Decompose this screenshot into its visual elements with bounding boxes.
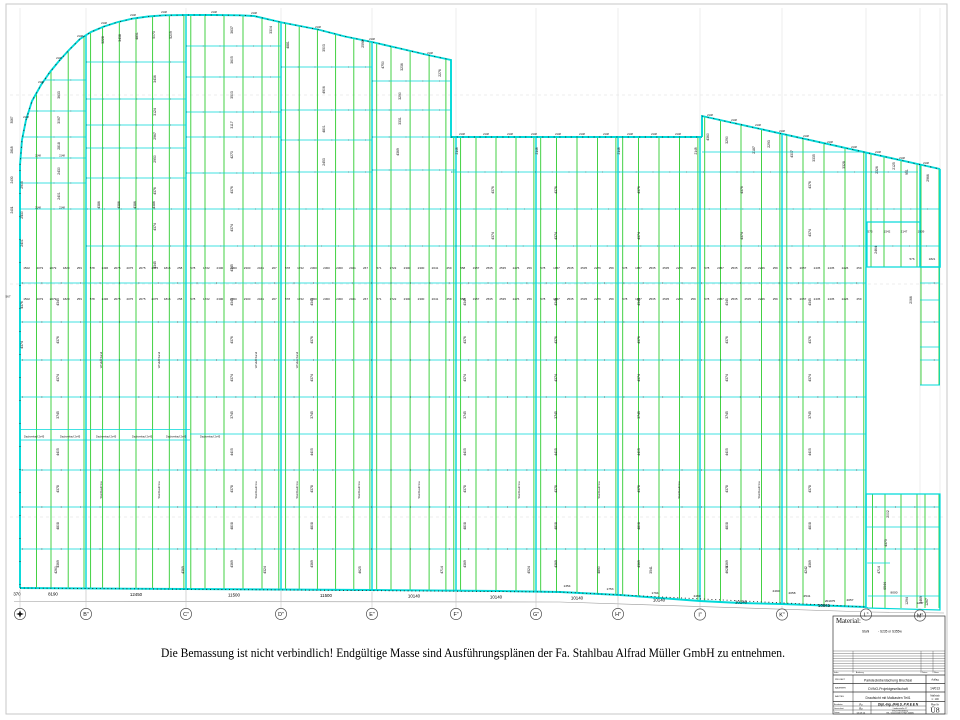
svg-text:2300: 2300 [310, 266, 317, 270]
svg-text:10140: 10140 [408, 594, 421, 599]
svg-text:259: 259 [77, 297, 82, 301]
svg-text:2401: 2401 [20, 239, 24, 247]
svg-text:BAUHERR: BAUHERR [835, 687, 846, 690]
svg-text:1722: 1722 [390, 297, 397, 301]
svg-text:258: 258 [177, 297, 182, 301]
svg-text:2148: 2148 [459, 132, 465, 136]
svg-text:558: 558 [460, 266, 465, 270]
svg-text:- S235 or S355w: - S235 or S355w [878, 630, 902, 634]
svg-text:Name: Name [934, 672, 939, 674]
svg-text:1957: 1957 [473, 266, 480, 270]
svg-text:2041: 2041 [349, 266, 356, 270]
svg-text:4376: 4376 [230, 336, 234, 344]
svg-text:2535: 2535 [499, 297, 506, 301]
svg-text:4890: 4890 [597, 566, 601, 574]
svg-text:2057: 2057 [717, 266, 724, 270]
svg-text:2300: 2300 [404, 297, 411, 301]
svg-text:2300: 2300 [336, 297, 343, 301]
svg-text:2148: 2148 [77, 34, 83, 38]
svg-text:1909: 1909 [918, 230, 925, 234]
svg-text:4374: 4374 [153, 223, 157, 231]
svg-text:2226: 2226 [758, 266, 765, 270]
svg-text:2148: 2148 [755, 123, 761, 127]
svg-text:Stahlbaufirma: Stahlbaufirma [254, 481, 258, 499]
svg-text:2148: 2148 [507, 132, 513, 136]
svg-text:1722: 1722 [297, 266, 304, 270]
svg-text:4378: 4378 [463, 485, 467, 493]
svg-text:2057: 2057 [800, 297, 807, 301]
svg-text:1267: 1267 [917, 601, 924, 605]
svg-text:2057: 2057 [847, 598, 854, 602]
svg-text:2148: 2148 [56, 56, 62, 60]
svg-text:2276: 2276 [594, 266, 601, 270]
svg-text:1753: 1753 [607, 587, 614, 591]
svg-text:4376: 4376 [56, 336, 60, 344]
svg-text:4378: 4378 [725, 485, 729, 493]
svg-text:K”: K” [779, 612, 785, 618]
svg-text:2147: 2147 [901, 230, 908, 234]
svg-text:Stahl: Stahl [862, 630, 870, 634]
svg-text:2066: 2066 [909, 296, 913, 304]
svg-text:11500: 11500 [228, 593, 240, 598]
svg-text:2535: 2535 [499, 266, 506, 270]
svg-text:2148: 2148 [531, 132, 537, 136]
svg-text:DVNO-Projektgesellschaft: DVNO-Projektgesellschaft [868, 687, 907, 691]
svg-text:Stahlbaufirma: Stahlbaufirma [99, 481, 103, 499]
svg-text:4374: 4374 [56, 374, 60, 382]
svg-text:Bearbeiter: Bearbeiter [834, 703, 843, 706]
svg-text:4405: 4405 [808, 448, 812, 456]
svg-text:4374: 4374 [637, 374, 641, 382]
svg-text:Stahlbaufirma: Stahlbaufirma [597, 481, 601, 499]
svg-text:4374: 4374 [808, 374, 812, 382]
svg-text:4750: 4750 [381, 61, 385, 69]
svg-text:2535: 2535 [567, 297, 574, 301]
svg-text:4405: 4405 [463, 448, 467, 456]
svg-text:1294: 1294 [905, 597, 909, 605]
svg-text:2430: 2430 [20, 211, 24, 219]
svg-text:Stahlbaufirma: Stahlbaufirma [677, 481, 681, 499]
svg-text:4808: 4808 [230, 522, 234, 530]
svg-text:2535: 2535 [486, 266, 493, 270]
svg-text:4369: 4369 [181, 566, 185, 574]
svg-text:Stahlbaufirma: Stahlbaufirma [417, 481, 421, 499]
svg-text:1821: 1821 [929, 257, 936, 261]
svg-text:2535: 2535 [649, 266, 656, 270]
svg-text:Windverband: Windverband [157, 351, 161, 368]
svg-text:259: 259 [773, 297, 778, 301]
svg-text:2148: 2148 [579, 132, 585, 136]
svg-text:2041: 2041 [432, 266, 439, 270]
svg-text:2535: 2535 [649, 297, 656, 301]
svg-text:4376: 4376 [554, 336, 558, 344]
svg-text:03.09.14: 03.09.14 [857, 712, 866, 714]
svg-text:2041: 2041 [349, 297, 356, 301]
svg-text:259: 259 [527, 266, 532, 270]
svg-text:2002: 2002 [886, 510, 890, 518]
svg-text:1957: 1957 [635, 297, 642, 301]
svg-text:2148: 2148 [803, 134, 809, 138]
svg-text:2435: 2435 [828, 297, 835, 301]
svg-text:2300: 2300 [217, 266, 224, 270]
svg-text:2148: 2148 [59, 154, 65, 158]
svg-text:4374: 4374 [230, 224, 234, 232]
svg-text:Änderung: Änderung [856, 671, 864, 674]
svg-text:3290: 3290 [725, 136, 729, 144]
svg-text:1722: 1722 [203, 266, 210, 270]
svg-text:575: 575 [867, 230, 872, 234]
svg-text:2148: 2148 [427, 51, 433, 55]
svg-text:14/013: 14/013 [930, 687, 940, 691]
svg-text:571: 571 [376, 266, 381, 270]
svg-text:D”: D” [278, 612, 284, 618]
svg-text:4374: 4374 [808, 229, 812, 237]
svg-text:4378: 4378 [554, 485, 558, 493]
svg-text:2148: 2148 [130, 13, 136, 17]
svg-text:4378: 4378 [808, 485, 812, 493]
svg-text:2490: 2490 [773, 589, 780, 593]
svg-text:2535: 2535 [567, 266, 574, 270]
svg-text:4242: 4242 [804, 566, 808, 574]
svg-text:2300: 2300 [230, 297, 237, 301]
svg-text:3331: 3331 [398, 117, 402, 125]
svg-text:2435: 2435 [814, 266, 821, 270]
svg-text:267: 267 [363, 266, 368, 270]
svg-text:4376: 4376 [725, 336, 729, 344]
svg-text:3335: 3335 [812, 154, 816, 162]
svg-text:Gezeichnet: Gezeichnet [834, 707, 844, 710]
svg-text:2148: 2148 [38, 80, 44, 84]
svg-text:4625: 4625 [725, 566, 729, 574]
svg-text:H”: H” [615, 612, 621, 618]
svg-text:578: 578 [540, 297, 545, 301]
svg-text:10140: 10140 [653, 598, 666, 603]
svg-text:4378: 4378 [56, 485, 60, 493]
svg-text:2125: 2125 [892, 162, 896, 170]
svg-text:2293: 2293 [767, 140, 771, 148]
svg-text:1957: 1957 [553, 297, 560, 301]
svg-text:4307: 4307 [790, 150, 794, 158]
svg-text:2535: 2535 [662, 297, 669, 301]
svg-text:4374: 4374 [310, 374, 314, 382]
svg-text:2401: 2401 [10, 206, 14, 213]
svg-text:2148: 2148 [211, 10, 217, 14]
svg-text:578: 578 [90, 266, 95, 270]
svg-text:4345: 4345 [808, 298, 812, 306]
svg-text:2148: 2148 [251, 11, 257, 15]
svg-text:4376: 4376 [740, 186, 744, 194]
svg-text:2075: 2075 [114, 297, 121, 301]
svg-text:4801: 4801 [322, 125, 326, 133]
svg-text:4369: 4369 [808, 560, 812, 568]
svg-text:2148: 2148 [779, 129, 785, 133]
svg-text:4376: 4376 [491, 186, 495, 194]
svg-text:Datum: Datum [834, 711, 840, 714]
svg-text:259: 259 [446, 266, 451, 270]
svg-text:1957: 1957 [553, 266, 560, 270]
svg-text:3124: 3124 [153, 108, 157, 116]
svg-text:2300: 2300 [217, 297, 224, 301]
svg-text:1496: 1496 [101, 297, 108, 301]
svg-text:4360: 4360 [706, 133, 710, 141]
svg-text:2148: 2148 [483, 132, 489, 136]
svg-text:3438: 3438 [118, 34, 122, 42]
svg-text:3745: 3745 [56, 411, 60, 419]
svg-text:2148: 2148 [923, 161, 929, 165]
svg-text:2148: 2148 [161, 10, 167, 14]
svg-text:267: 267 [363, 297, 368, 301]
svg-text:2148: 2148 [651, 132, 657, 136]
svg-text:4808: 4808 [554, 522, 558, 530]
svg-text:C”: C” [183, 612, 189, 618]
svg-text:951: 951 [905, 169, 909, 175]
svg-text:2226: 2226 [758, 297, 765, 301]
svg-text:2453: 2453 [322, 158, 326, 166]
svg-text:4375: 4375 [884, 539, 888, 547]
svg-text:2148: 2148 [694, 147, 698, 154]
svg-text:4376: 4376 [230, 186, 234, 194]
svg-text:4405: 4405 [554, 448, 558, 456]
svg-text:3304: 3304 [269, 26, 273, 34]
svg-text:3745: 3745 [554, 411, 558, 419]
svg-text:Dachverlauf 2x45: Dachverlauf 2x45 [60, 435, 81, 439]
svg-text:2148: 2148 [731, 118, 737, 122]
svg-text:259: 259 [446, 297, 451, 301]
svg-text:3067: 3067 [10, 116, 14, 123]
svg-text:3745: 3745 [463, 411, 467, 419]
svg-text:BAUTEIL: BAUTEIL [835, 695, 845, 698]
svg-text:1722: 1722 [297, 297, 304, 301]
svg-text:4369: 4369 [396, 148, 400, 156]
svg-text:F”: F” [453, 612, 458, 618]
svg-text:4376: 4376 [554, 186, 558, 194]
svg-text:Windverband: Windverband [254, 351, 258, 368]
svg-text:Material:: Material: [836, 618, 861, 625]
svg-text:2148: 2148 [617, 147, 621, 154]
svg-text:4851: 4851 [135, 32, 139, 40]
svg-text:2148: 2148 [35, 206, 41, 210]
svg-text:2148: 2148 [851, 145, 857, 149]
svg-text:1354: 1354 [564, 584, 571, 588]
svg-text:2079: 2079 [36, 266, 43, 270]
svg-text:576: 576 [909, 257, 914, 261]
svg-text:4376: 4376 [463, 336, 467, 344]
svg-text:2148: 2148 [627, 132, 633, 136]
svg-text:4808: 4808 [637, 522, 641, 530]
svg-text:2148: 2148 [899, 156, 905, 160]
svg-text:4374: 4374 [637, 232, 641, 240]
svg-text:2300: 2300 [244, 266, 251, 270]
svg-text:2276: 2276 [676, 266, 683, 270]
svg-text:2300: 2300 [230, 266, 237, 270]
svg-text:4405: 4405 [725, 448, 729, 456]
svg-text:3745: 3745 [310, 411, 314, 419]
svg-text:2818: 2818 [57, 142, 61, 150]
svg-text:2401: 2401 [57, 192, 61, 200]
svg-text:4405: 4405 [230, 448, 234, 456]
svg-text:2148: 2148 [101, 21, 107, 25]
svg-text:2148: 2148 [603, 132, 609, 136]
svg-text:3745: 3745 [725, 411, 729, 419]
svg-text:10140: 10140 [735, 600, 748, 605]
svg-text:2148: 2148 [707, 113, 713, 117]
svg-text:Stahlbaufirma: Stahlbaufirma [357, 481, 361, 499]
svg-text:2041: 2041 [257, 297, 264, 301]
svg-text:3503: 3503 [322, 44, 326, 52]
svg-text:2075: 2075 [126, 297, 133, 301]
svg-text:2435: 2435 [828, 266, 835, 270]
svg-text:4376: 4376 [808, 336, 812, 344]
svg-text:4374: 4374 [740, 232, 744, 240]
svg-text:4369: 4369 [230, 560, 234, 568]
svg-text:8190: 8190 [48, 592, 58, 597]
svg-text:5073: 5073 [152, 31, 156, 39]
svg-text:4369: 4369 [637, 560, 641, 568]
svg-text:12450: 12450 [130, 592, 143, 597]
svg-text:Dachverlauf 2x45: Dachverlauf 2x45 [132, 435, 153, 439]
svg-text:3745: 3745 [808, 411, 812, 419]
svg-text:Index: Index [834, 672, 838, 674]
svg-text:2148: 2148 [827, 140, 833, 144]
svg-text:6944: 6944 [883, 582, 887, 590]
svg-text:1722: 1722 [203, 297, 210, 301]
svg-text:4714: 4714 [440, 566, 444, 574]
svg-text:4273: 4273 [230, 151, 234, 159]
svg-text:2079: 2079 [50, 297, 57, 301]
svg-text:Windverband: Windverband [295, 351, 299, 368]
svg-text:Dachverlauf 2x45: Dachverlauf 2x45 [24, 435, 45, 439]
svg-text:Stahlbaufirma: Stahlbaufirma [757, 481, 761, 499]
svg-text:2075: 2075 [139, 297, 146, 301]
svg-text:3228: 3228 [101, 36, 105, 44]
svg-text:2148: 2148 [455, 147, 459, 154]
svg-text:2535: 2535 [580, 266, 587, 270]
svg-text:Dachverlauf 2x45: Dachverlauf 2x45 [200, 435, 221, 439]
svg-text:1267: 1267 [925, 598, 929, 606]
svg-text:1502: 1502 [23, 297, 30, 301]
svg-text:3541: 3541 [649, 566, 653, 574]
svg-text:2148: 2148 [59, 206, 65, 210]
svg-text:2535: 2535 [731, 297, 738, 301]
svg-text:1820: 1820 [63, 297, 70, 301]
svg-text:2905: 2905 [20, 181, 24, 189]
svg-text:259: 259 [527, 297, 532, 301]
svg-text:Datum: Datum [922, 671, 928, 674]
svg-text:1722: 1722 [390, 266, 397, 270]
svg-text:259: 259 [77, 266, 82, 270]
svg-text:4374: 4374 [554, 374, 558, 382]
svg-text:4369: 4369 [310, 560, 314, 568]
svg-text:3117: 3117 [230, 121, 234, 128]
svg-text:2276: 2276 [594, 297, 601, 301]
svg-text:571: 571 [376, 297, 381, 301]
svg-text:1542: 1542 [884, 230, 891, 234]
svg-text:4376: 4376 [637, 336, 641, 344]
svg-text:2300: 2300 [244, 297, 251, 301]
svg-text:Stahlbaufirma: Stahlbaufirma [157, 481, 161, 499]
svg-text:1 : 100: 1 : 100 [931, 698, 939, 701]
svg-text:258: 258 [177, 266, 182, 270]
svg-text:2057: 2057 [800, 266, 807, 270]
svg-text:4374: 4374 [20, 341, 24, 349]
svg-text:4369: 4369 [463, 560, 467, 568]
svg-text:G”: G” [533, 612, 539, 618]
svg-text:2226: 2226 [842, 297, 849, 301]
svg-text:1794: 1794 [652, 591, 659, 595]
svg-text:3605: 3605 [230, 56, 234, 64]
svg-text:2300: 2300 [404, 266, 411, 270]
svg-text:Die Bemassung ist nicht verbin: Die Bemassung ist nicht verbindlich! End… [161, 646, 785, 660]
svg-text:2041: 2041 [432, 297, 439, 301]
svg-text:3290: 3290 [398, 92, 402, 100]
svg-text:4374: 4374 [554, 232, 558, 240]
svg-text:259: 259 [691, 297, 696, 301]
svg-text:2435: 2435 [814, 297, 821, 301]
svg-text:4376: 4376 [808, 181, 812, 189]
svg-text:578: 578 [190, 297, 195, 301]
svg-text:4369: 4369 [554, 560, 558, 568]
svg-text:2075: 2075 [151, 297, 158, 301]
svg-text:2967: 2967 [153, 132, 157, 140]
svg-text:E”: E” [369, 612, 375, 618]
svg-text:3236: 3236 [400, 63, 404, 71]
svg-text:1816: 1816 [164, 297, 171, 301]
svg-text:267: 267 [272, 266, 277, 270]
svg-text:2430: 2430 [57, 167, 61, 175]
svg-text:3637: 3637 [230, 26, 234, 34]
svg-text:4386: 4386 [117, 201, 121, 209]
svg-text:2300: 2300 [418, 297, 425, 301]
svg-text:2187: 2187 [752, 146, 756, 154]
svg-text:2057: 2057 [717, 297, 724, 301]
svg-text:Stahlbaufirma: Stahlbaufirma [517, 481, 521, 499]
svg-text:Draufsicht mit Malkasten Teil1: Draufsicht mit Malkasten Teil1 [866, 696, 911, 700]
svg-text:2148: 2148 [315, 25, 321, 29]
svg-text:4378: 4378 [637, 485, 641, 493]
svg-text:1820: 1820 [63, 266, 70, 270]
svg-text:2535: 2535 [744, 297, 751, 301]
svg-text:2148: 2148 [23, 115, 29, 119]
svg-text:4378: 4378 [310, 485, 314, 493]
svg-text:4808: 4808 [808, 522, 812, 530]
svg-text:B”: B” [83, 612, 89, 618]
svg-text:4524: 4524 [527, 566, 531, 574]
svg-text:578: 578 [285, 266, 290, 270]
svg-text:2535: 2535 [662, 266, 669, 270]
svg-text:Parkdecküberdachung Bruchsal: Parkdecküberdachung Bruchsal [864, 679, 912, 683]
svg-text:2535: 2535 [744, 266, 751, 270]
svg-text:1496: 1496 [101, 266, 108, 270]
svg-text:Ü8: Ü8 [930, 706, 939, 715]
svg-text:3633: 3633 [57, 91, 61, 99]
svg-text:4376: 4376 [310, 336, 314, 344]
svg-text:4405: 4405 [56, 448, 60, 456]
svg-text:2490: 2490 [694, 594, 701, 598]
svg-text:578: 578 [90, 297, 95, 301]
svg-text:201975: 201975 [825, 599, 836, 603]
svg-text:8000: 8000 [891, 591, 898, 595]
svg-text:Dachverlauf 2x45: Dachverlauf 2x45 [166, 435, 187, 439]
svg-text:3745: 3745 [637, 411, 641, 419]
svg-text:4714: 4714 [877, 566, 881, 574]
svg-text:2226: 2226 [842, 266, 849, 270]
svg-text:3745: 3745 [230, 411, 234, 419]
svg-text:578: 578 [540, 266, 545, 270]
svg-text:4260: 4260 [54, 566, 58, 574]
svg-text:2966: 2966 [926, 174, 930, 182]
svg-text:4374: 4374 [491, 232, 495, 240]
svg-text:4376: 4376 [637, 186, 641, 194]
